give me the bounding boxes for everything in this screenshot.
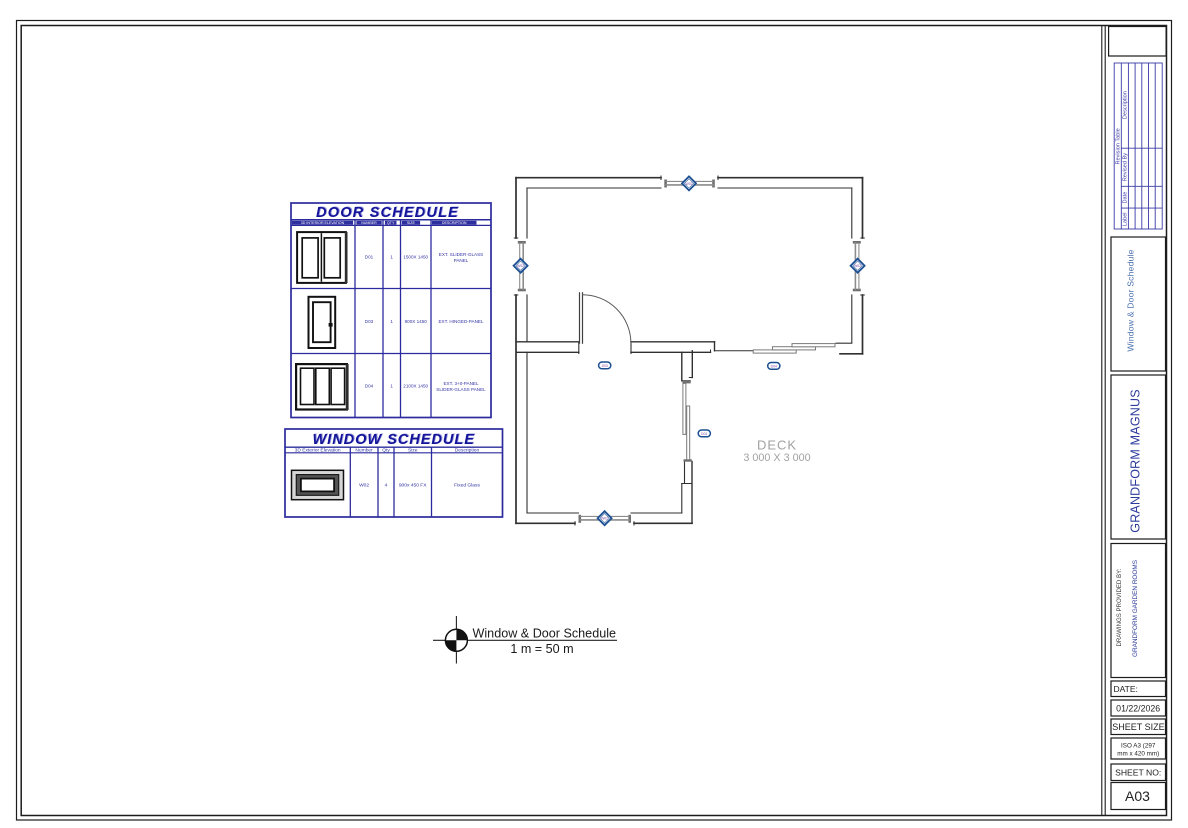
svg-text:Label: Label [1123, 212, 1129, 226]
svg-text:W02: W02 [601, 517, 608, 521]
svg-text:D04: D04 [365, 384, 374, 389]
svg-text:SHEET NO:: SHEET NO: [1115, 768, 1161, 778]
svg-text:SLIDER-GLASS PANEL: SLIDER-GLASS PANEL [436, 387, 486, 392]
svg-text:1: 1 [390, 255, 393, 260]
svg-text:DESCRIPTION: DESCRIPTION [442, 221, 467, 225]
svg-text:Revision Table: Revision Table [1115, 128, 1121, 164]
svg-text:D03: D03 [365, 319, 374, 324]
svg-text:Fixed Glass: Fixed Glass [454, 483, 480, 489]
svg-text:DOOR SCHEDULE: DOOR SCHEDULE [316, 205, 459, 221]
svg-text:D04: D04 [771, 364, 777, 368]
svg-text:D01: D01 [365, 255, 374, 260]
svg-text:DECK: DECK [757, 438, 797, 453]
svg-text:Description: Description [455, 448, 480, 454]
svg-text:Size: Size [408, 448, 418, 454]
svg-text:900x 450 FX: 900x 450 FX [399, 483, 427, 489]
svg-text:W02: W02 [686, 182, 693, 186]
svg-text:1500X 1450: 1500X 1450 [403, 255, 428, 260]
svg-text:SIZE: SIZE [407, 221, 416, 225]
svg-text:EXT. HINGED-PANEL: EXT. HINGED-PANEL [438, 319, 484, 324]
svg-text:D01: D01 [701, 432, 707, 436]
svg-text:W02: W02 [359, 483, 369, 489]
svg-text:GRANDFORM MAGNUS: GRANDFORM MAGNUS [1129, 389, 1143, 532]
svg-text:GRANDFORM GARDEN ROOMS: GRANDFORM GARDEN ROOMS [1132, 560, 1139, 657]
svg-text:1: 1 [390, 384, 393, 389]
svg-text:DRAWINGS PROVIDED BY:: DRAWINGS PROVIDED BY: [1116, 568, 1123, 646]
svg-text:DATE:: DATE: [1114, 684, 1138, 694]
svg-text:Number: Number [355, 448, 373, 454]
svg-text:D03: D03 [602, 364, 608, 368]
svg-text:3D Exterior Elevation: 3D Exterior Elevation [295, 448, 341, 454]
svg-text:WINDOW SCHEDULE: WINDOW SCHEDULE [312, 432, 475, 448]
svg-text:ISO A3 (297: ISO A3 (297 [1121, 743, 1156, 750]
svg-text:Revised By: Revised By [1123, 153, 1129, 181]
svg-text:Description: Description [1123, 91, 1129, 119]
svg-text:2100X 1450: 2100X 1450 [403, 384, 428, 389]
svg-text:Qty: Qty [382, 448, 390, 454]
svg-text:EXT. SLIDER-GLASS: EXT. SLIDER-GLASS [439, 252, 483, 257]
svg-text:3 000 X 3 000: 3 000 X 3 000 [743, 452, 810, 464]
svg-text:W02: W02 [854, 264, 861, 268]
svg-text:3D INTERIOR ELEVATION: 3D INTERIOR ELEVATION [301, 221, 345, 225]
svg-text:4: 4 [385, 483, 388, 489]
svg-text:QTY: QTY [387, 221, 395, 225]
svg-text:SHEET SIZE:: SHEET SIZE: [1112, 722, 1167, 732]
svg-text:1 m = 50 m: 1 m = 50 m [510, 642, 573, 656]
svg-text:Date: Date [1123, 192, 1129, 204]
svg-text:mm x 420 mm): mm x 420 mm) [1117, 751, 1159, 758]
svg-text:EXT. 3+0-PANEL: EXT. 3+0-PANEL [443, 381, 478, 386]
svg-text:Window & Door Schedule: Window & Door Schedule [1126, 249, 1136, 351]
svg-text:1: 1 [390, 319, 393, 324]
svg-text:PANEL: PANEL [454, 258, 469, 263]
svg-text:Window & Door Schedule: Window & Door Schedule [473, 626, 617, 640]
svg-text:W02: W02 [517, 264, 524, 268]
svg-text:NUMBER: NUMBER [361, 221, 377, 225]
svg-text:A03: A03 [1125, 788, 1150, 804]
svg-text:900X 1450: 900X 1450 [405, 319, 428, 324]
svg-text:01/22/2026: 01/22/2026 [1116, 703, 1160, 713]
